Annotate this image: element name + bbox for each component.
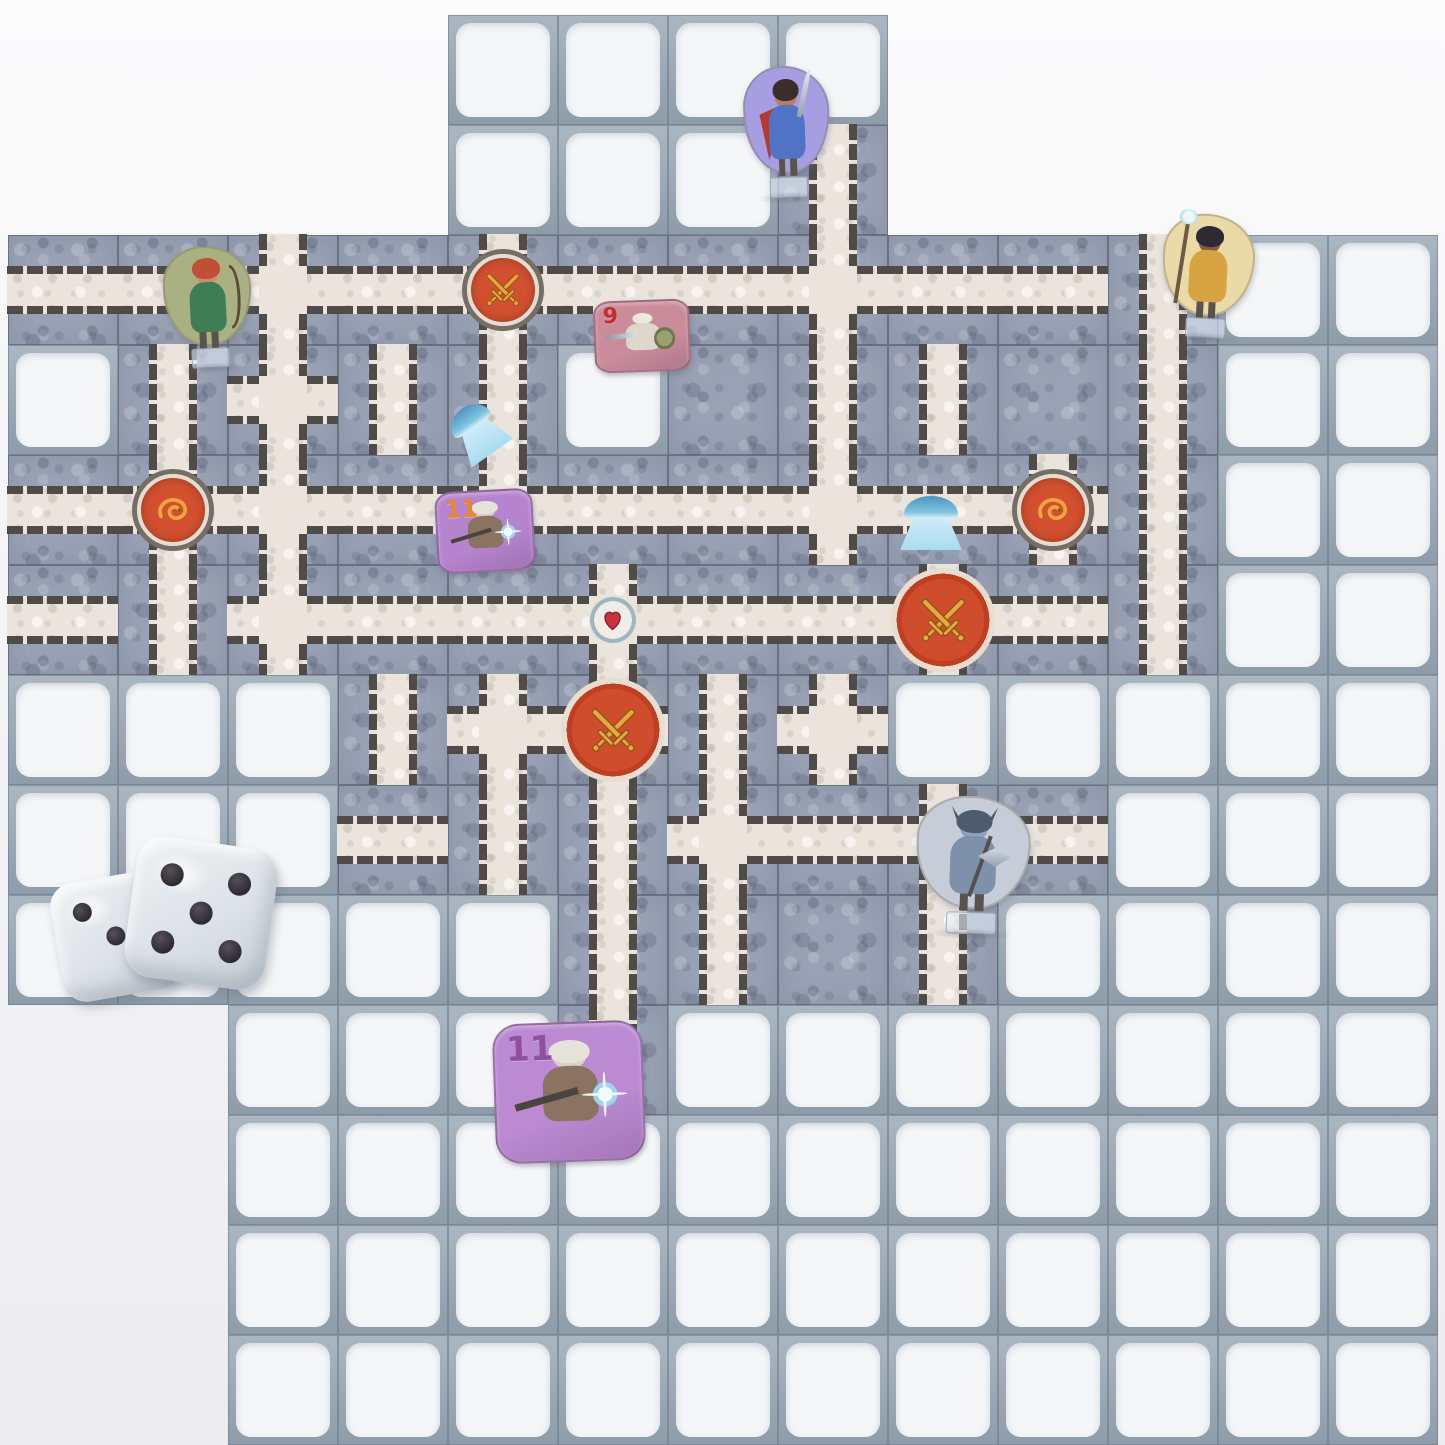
heart-emblem-icon	[590, 597, 636, 643]
tile-plain	[998, 345, 1108, 455]
plastic-stand[interactable]	[946, 911, 997, 935]
tile-corridor-vertical	[668, 895, 778, 1005]
frame-empty-cell	[1108, 1005, 1218, 1115]
frame-empty-cell	[448, 1335, 558, 1445]
lightning-spark-icon	[584, 1070, 625, 1118]
tile-corridor-horizontal	[668, 455, 778, 565]
tile-corridor-vertical	[1108, 565, 1218, 675]
patch	[809, 266, 857, 314]
frame-empty-cell	[778, 1005, 888, 1115]
patch	[699, 816, 747, 864]
frame-empty-cell	[778, 1115, 888, 1225]
hair	[192, 258, 221, 280]
token-number: 11	[444, 496, 479, 522]
tile-corridor-vertical	[778, 345, 888, 455]
swords-emblem-icon	[467, 254, 539, 326]
band	[809, 344, 857, 456]
patch	[809, 706, 857, 754]
die-pip	[72, 902, 94, 924]
frame-empty-cell	[1218, 1115, 1328, 1225]
monster-token-ghoul[interactable]: 11	[434, 487, 536, 574]
band	[7, 486, 119, 534]
die-pip	[227, 871, 253, 897]
frame-empty-cell	[1218, 785, 1328, 895]
frame-empty-cell	[558, 1335, 668, 1445]
frame-empty-cell	[998, 1005, 1108, 1115]
patch	[259, 486, 307, 534]
frame-empty-cell	[1328, 785, 1438, 895]
band	[1139, 564, 1187, 676]
tile-corridor-horizontal	[338, 455, 448, 565]
frame-empty-cell	[1328, 1005, 1438, 1115]
tile-corridor-cross	[228, 455, 338, 565]
frame-empty-cell	[1218, 455, 1328, 565]
die-showing-five[interactable]	[121, 833, 281, 993]
frame-empty-cell	[888, 675, 998, 785]
tile-corridor-horizontal	[998, 565, 1108, 675]
tile-corridor-horizontal	[668, 565, 778, 675]
photo-backdrop: 91111	[0, 0, 1445, 1445]
frame-empty-cell	[338, 1115, 448, 1225]
frame-empty-cell	[448, 15, 558, 125]
frame-empty-cell	[338, 1335, 448, 1445]
tile-swords-node	[448, 235, 558, 345]
frame-empty-cell	[1218, 1005, 1328, 1115]
dragon-emblem-icon	[137, 474, 209, 546]
frame-empty-cell	[1108, 1225, 1218, 1335]
tile-corridor-horizontal	[8, 455, 118, 565]
token-number: 9	[602, 306, 618, 329]
band	[149, 564, 197, 676]
band	[7, 266, 119, 314]
frame-empty-cell	[1328, 235, 1438, 345]
frame-empty-cell	[8, 345, 118, 455]
frame-empty-cell	[998, 1115, 1108, 1225]
die-pip	[105, 925, 127, 947]
band	[337, 266, 449, 314]
tile-corridor-horizontal	[778, 785, 888, 895]
die-pip	[217, 939, 243, 965]
band	[589, 894, 637, 1006]
frame-empty-cell	[1328, 455, 1438, 565]
character-figure	[176, 257, 241, 358]
water-fountain[interactable]	[896, 496, 966, 550]
band	[777, 816, 889, 864]
fountain-rim	[904, 496, 957, 519]
frame-empty-cell	[1108, 895, 1218, 1005]
frame-empty-cell	[1108, 1115, 1218, 1225]
tile-corridor-vertical	[558, 785, 668, 895]
tile-battle-arena	[558, 675, 668, 785]
monster-knight-standee[interactable]	[914, 794, 1033, 936]
patch	[809, 486, 857, 534]
band	[667, 596, 779, 644]
frame-empty-cell	[448, 1225, 558, 1335]
tile-corridor-vertical	[888, 345, 998, 455]
patch	[479, 706, 527, 754]
frame-empty-cell	[558, 1225, 668, 1335]
frame-empty-cell	[1218, 895, 1328, 1005]
patch	[259, 596, 307, 644]
frame-empty-cell	[1108, 1335, 1218, 1445]
tile-corridor-cross	[448, 675, 558, 785]
tile-corridor-horizontal	[888, 235, 998, 345]
band	[777, 596, 889, 644]
frame-empty-cell	[1328, 1115, 1438, 1225]
frame-empty-cell	[338, 895, 448, 1005]
frame-empty-cell	[668, 1005, 778, 1115]
shield-icon	[654, 327, 675, 350]
tile-corridor-vertical	[118, 565, 228, 675]
lightning-spark-icon	[495, 518, 522, 546]
tile-corridor-horizontal	[998, 235, 1108, 345]
character-figure	[1174, 225, 1242, 327]
band	[589, 784, 637, 896]
tile-battle-arena	[888, 565, 998, 675]
band	[337, 816, 449, 864]
frame-empty-cell	[228, 1005, 338, 1115]
frame-empty-cell	[228, 675, 338, 785]
frame-empty-cell	[558, 15, 668, 125]
tile-corridor-horizontal	[448, 565, 558, 675]
leg	[778, 156, 785, 176]
tile-corridor-vertical	[1108, 345, 1218, 455]
tile-plain	[778, 895, 888, 1005]
token-number: 11	[506, 1031, 554, 1067]
frame-empty-cell	[998, 675, 1108, 785]
band	[887, 266, 999, 314]
tile-corridor-horizontal	[778, 565, 888, 675]
tile-corridor-vertical	[338, 345, 448, 455]
frame-empty-cell	[888, 1225, 998, 1335]
band	[699, 894, 747, 1006]
frame-empty-cell	[1328, 565, 1438, 675]
frame-empty-cell	[1328, 1225, 1438, 1335]
frame-empty-cell	[118, 675, 228, 785]
frame-empty-cell	[778, 1335, 888, 1445]
band	[7, 596, 119, 644]
frame-empty-cell	[558, 125, 668, 235]
frame-empty-cell	[1218, 675, 1328, 785]
tile-corridor-horizontal	[338, 785, 448, 895]
band	[369, 674, 417, 786]
hero-ranger-standee[interactable]	[161, 244, 255, 370]
plastic-stand[interactable]	[1185, 317, 1226, 339]
patch	[259, 266, 307, 314]
tile-corridor-vertical	[448, 785, 558, 895]
tile-dragon-node	[118, 455, 228, 565]
leg	[790, 156, 797, 176]
tile-corridor-vertical	[668, 675, 778, 785]
tile-corridor-horizontal	[338, 235, 448, 345]
character-figure	[932, 808, 1013, 921]
band	[557, 486, 669, 534]
tile-corridor-cross	[778, 675, 888, 785]
tile-corridor-vertical	[1108, 455, 1218, 565]
frame-empty-cell	[448, 125, 558, 235]
frame-empty-cell	[668, 1335, 778, 1445]
tile-corridor-horizontal	[8, 565, 118, 675]
band	[369, 344, 417, 456]
frame-empty-cell	[888, 1115, 998, 1225]
body	[189, 281, 227, 334]
band	[337, 596, 449, 644]
frame-empty-cell	[1108, 675, 1218, 785]
tile-corridor-cross	[778, 455, 888, 565]
frame-empty-cell	[448, 895, 558, 1005]
hero-mage-standee[interactable]	[1159, 212, 1257, 341]
dragon-emblem-icon	[1017, 474, 1089, 546]
frame-empty-cell	[1218, 565, 1328, 675]
band	[997, 596, 1109, 644]
frame-empty-cell	[1328, 675, 1438, 785]
tile-corridor-vertical	[338, 675, 448, 785]
frame-empty-cell	[338, 1225, 448, 1335]
band	[1139, 454, 1187, 566]
frame-empty-cell	[228, 1335, 338, 1445]
frame-empty-cell	[1218, 1225, 1328, 1335]
die-pip	[188, 900, 214, 926]
tile-corridor-cross	[778, 235, 888, 345]
tile-corridor-vertical	[558, 895, 668, 1005]
frame-empty-cell	[338, 1005, 448, 1115]
body	[1188, 249, 1228, 302]
tile-corridor-horizontal	[558, 455, 668, 565]
frame-empty-cell	[1218, 1335, 1328, 1445]
tile-dragon-node	[998, 455, 1108, 565]
frame-empty-cell	[668, 1225, 778, 1335]
patch	[259, 376, 307, 424]
frame-empty-cell	[778, 1225, 888, 1335]
frame-empty-cell	[888, 1335, 998, 1445]
battle-arena-emblem-icon	[561, 678, 665, 782]
hero-warrior-standee[interactable]	[742, 65, 833, 200]
character-figure	[756, 78, 818, 186]
hair	[548, 1040, 590, 1064]
frame-empty-cell	[888, 1005, 998, 1115]
frame-empty-cell	[1218, 345, 1328, 455]
plastic-stand[interactable]	[770, 176, 809, 198]
monster-figure	[614, 309, 673, 364]
plastic-stand[interactable]	[191, 347, 231, 369]
band	[667, 486, 779, 534]
tile-corridor-horizontal	[338, 565, 448, 675]
monster-token-skeleton[interactable]: 9	[593, 298, 691, 373]
frame-empty-cell	[228, 1115, 338, 1225]
frame-empty-cell	[998, 1335, 1108, 1445]
frame-empty-cell	[998, 1225, 1108, 1335]
band	[997, 266, 1109, 314]
band	[337, 486, 449, 534]
battle-arena-emblem-icon	[891, 568, 995, 672]
tile-heart-node	[558, 565, 668, 675]
band	[1139, 344, 1187, 456]
frame-empty-cell	[668, 1115, 778, 1225]
band	[479, 784, 527, 896]
frame-empty-cell	[1328, 1335, 1438, 1445]
frame-empty-cell	[8, 675, 118, 785]
band	[447, 596, 559, 644]
tile-corridor-horizontal	[8, 235, 118, 345]
band	[919, 344, 967, 456]
frame-empty-cell	[1328, 345, 1438, 455]
tile-corridor-cross	[668, 785, 778, 895]
frame-empty-cell	[1328, 895, 1438, 1005]
frame-empty-cell	[228, 1225, 338, 1335]
die-pip	[159, 862, 185, 888]
frame-empty-cell	[1108, 785, 1218, 895]
die-pip	[150, 929, 176, 955]
band	[699, 674, 747, 786]
tile-corridor-cross	[228, 565, 338, 675]
monster-token-ghoul[interactable]: 11	[492, 1019, 647, 1164]
